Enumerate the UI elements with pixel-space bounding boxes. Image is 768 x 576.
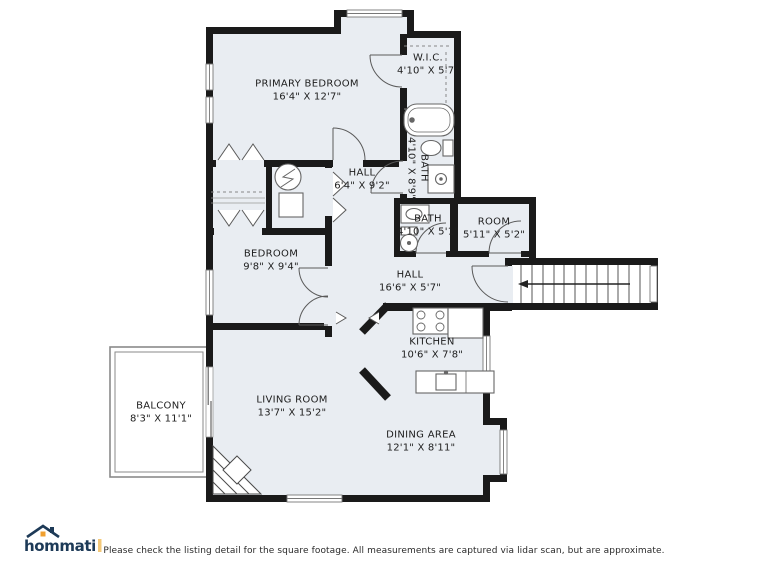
room-label-wic: W.I.C. 4'10" X 5'7" xyxy=(397,53,459,78)
room-label-kitchen: KITCHEN 10'6" X 7'8" xyxy=(401,337,463,362)
disclaimer-text: Please check the listing detail for the … xyxy=(0,546,768,556)
room-label-hall-upper: HALL 6'4" X 9'2" xyxy=(334,168,390,193)
room-label-room: ROOM 5'11" X 5'2" xyxy=(463,217,525,242)
room-label-primary-bedroom: PRIMARY BEDROOM 16'4" X 12'7" xyxy=(255,79,359,104)
appliance-box xyxy=(279,193,303,217)
washer-icon xyxy=(275,164,301,190)
room-label-hall-lower: HALL 16'6" X 5'7" xyxy=(379,270,441,295)
room-label-balcony: BALCONY 8'3" X 11'1" xyxy=(130,401,192,426)
hommati-logo: hommati xyxy=(22,522,122,562)
logo-chimney-icon xyxy=(50,527,54,533)
room-label-bath-hall: BATH 4'10" X 5'1" xyxy=(397,214,459,239)
balcony-slider-door xyxy=(206,367,213,437)
room-label-living-room: LIVING ROOM 13'7" X 15'2" xyxy=(256,395,327,420)
stairwell xyxy=(505,258,658,310)
counter-fridge xyxy=(448,308,483,338)
floor-plan-page: PRIMARY BEDROOM 16'4" X 12'7" W.I.C. 4'1… xyxy=(0,0,768,576)
room-label-dining-area: DINING AREA 12'1" X 8'11" xyxy=(386,430,456,455)
kitchen-sink xyxy=(436,374,456,390)
room-label-bedroom: BEDROOM 9'8" X 9'4" xyxy=(243,249,299,274)
logo-window-icon xyxy=(41,532,46,537)
room-label-bath-primary: BATH 4'10" X 8'9" xyxy=(405,137,430,199)
stairwell-window xyxy=(650,266,657,302)
